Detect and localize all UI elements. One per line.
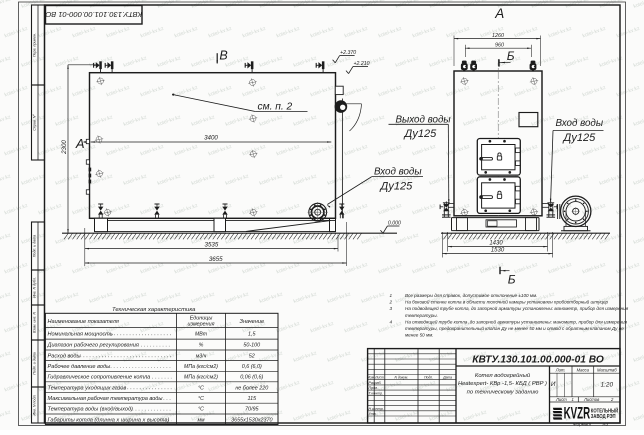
svg-text:В: В <box>219 48 227 62</box>
svg-text:Гидравлическое сопротивление к: Гидравлическое сопротивление котла <box>48 375 151 381</box>
svg-text:Перв. примен.: Перв. примен. <box>32 33 36 57</box>
svg-text:Подп. и дата: Подп. и дата <box>32 235 36 258</box>
svg-text:3655: 3655 <box>209 256 223 263</box>
svg-text:см. п. 2: см. п. 2 <box>258 101 293 112</box>
svg-text:Утв.: Утв. <box>369 412 377 416</box>
svg-text:Масса: Масса <box>577 367 590 372</box>
svg-text:А3: А3 <box>602 422 609 427</box>
svg-text:1530: 1530 <box>491 247 505 253</box>
svg-text:Инв. N дубл.: Инв. N дубл. <box>32 277 36 298</box>
svg-text:Масштаб: Масштаб <box>597 367 617 372</box>
svg-text:115: 115 <box>248 396 258 402</box>
svg-text:температуры.: температуры. <box>405 313 438 318</box>
svg-text:Рабочее давление воды: Рабочее давление воды <box>48 364 111 370</box>
svg-text:960: 960 <box>495 43 504 49</box>
svg-text:Б: Б <box>507 49 515 63</box>
svg-text:KVZR: KVZR <box>564 404 591 422</box>
svg-text:КВТУ.130.101.00.000-01 ВО: КВТУ.130.101.00.000-01 ВО <box>472 354 604 365</box>
svg-text:4: 4 <box>389 319 392 324</box>
svg-text:2300: 2300 <box>61 140 68 155</box>
svg-text:+2.210: +2.210 <box>354 61 370 67</box>
svg-text:КВТУ.130.101.00.000-01 ВО: КВТУ.130.101.00.000-01 ВО <box>45 10 142 19</box>
svg-text:Расход воды: Расход воды <box>48 353 81 359</box>
svg-text:по техническому заданию: по техническому заданию <box>467 389 539 395</box>
svg-text:Лист: Лист <box>555 397 567 402</box>
svg-text:2: 2 <box>388 300 392 305</box>
svg-text:Справ. N°: Справ. N° <box>32 114 36 131</box>
svg-text:ЗАВОД РЭП: ЗАВОД РЭП <box>591 413 616 420</box>
svg-text:Габариты котла (длинна х ширин: Габариты котла (длинна х ширина х высота… <box>48 417 170 423</box>
svg-text:Т.контр.: Т.контр. <box>369 391 384 395</box>
svg-text:1,5: 1,5 <box>248 331 256 337</box>
svg-text:3400: 3400 <box>204 135 218 142</box>
svg-text:Температура уходящих газов: Температура уходящих газов <box>48 385 127 391</box>
svg-text:70/95: 70/95 <box>245 407 259 413</box>
svg-text:Подп. и дата: Подп. и дата <box>32 352 36 375</box>
svg-text:А: А <box>494 6 504 21</box>
svg-text:Ду125: Ду125 <box>379 180 414 192</box>
svg-text:3535: 3535 <box>205 241 219 248</box>
svg-text:И: И <box>551 381 556 388</box>
svg-text:температуры, предохранительный: температуры, предохранительный клапан Ду… <box>405 325 624 331</box>
svg-text:Листов: Листов <box>583 397 600 402</box>
svg-text:Диапазон рабочего регулировани: Диапазон рабочего регулирования <box>47 343 139 349</box>
svg-text:На отводящей трубе котла ,до з: На отводящей трубе котла ,до запорной ар… <box>405 318 627 324</box>
svg-text:1:20: 1:20 <box>601 382 614 389</box>
svg-text:52: 52 <box>249 353 255 359</box>
svg-text:+2.370: +2.370 <box>340 50 356 56</box>
svg-text:На подводящей трубе котла, д: На подводящей трубе котла, до запорной а… <box>405 305 629 311</box>
svg-text:Ду125: Ду125 <box>562 132 597 144</box>
svg-text:мм: мм <box>197 417 205 423</box>
svg-text:0,06 (0,6): 0,06 (0,6) <box>240 375 263 381</box>
svg-text:Изм: Изм <box>368 376 375 380</box>
svg-text:На боковой стенке котла в обла: На боковой стенке котла в области топочн… <box>405 299 609 305</box>
svg-text:1: 1 <box>389 293 392 298</box>
svg-text:0,6 (6,0): 0,6 (6,0) <box>242 364 262 370</box>
svg-text:Лист: Лист <box>374 376 384 380</box>
svg-text:не более 220: не более 220 <box>235 385 268 391</box>
svg-text:50-100: 50-100 <box>243 343 260 349</box>
svg-text:1: 1 <box>572 397 574 402</box>
svg-text:Выход воды: Выход воды <box>396 114 452 125</box>
svg-text:Б: Б <box>508 273 516 287</box>
svg-text:°С: °С <box>198 385 204 391</box>
svg-text:Вход воды: Вход воды <box>556 118 604 129</box>
svg-text:МПа (кгс/см2): МПа (кгс/см2) <box>184 375 218 381</box>
svg-text:МВт: МВт <box>195 331 208 337</box>
svg-text:м3/ч: м3/ч <box>196 353 207 359</box>
svg-text:Лит.: Лит. <box>555 367 566 372</box>
svg-text:Наименование показателя: Наименование показателя <box>48 319 119 325</box>
svg-text:0.000: 0.000 <box>388 220 401 226</box>
svg-text:%: % <box>199 343 204 349</box>
svg-text:Формат: Формат <box>573 422 591 427</box>
svg-text:Все размеры для справок, допус: Все размеры для справок, допустимое откл… <box>405 293 537 298</box>
svg-text:Котел водогрейный: Котел водогрейный <box>475 372 531 379</box>
svg-text:Подп.: Подп. <box>424 376 433 380</box>
svg-text:Разраб.: Разраб. <box>369 381 382 385</box>
svg-text:°С: °С <box>198 396 204 402</box>
svg-text:Температура воды (вход/выход): Температура воды (вход/выход) <box>48 407 134 413</box>
svg-text:1430: 1430 <box>489 240 503 246</box>
svg-text:Максимальная рабочая температу: Максимальная рабочая температура воды <box>48 396 163 402</box>
svg-text:°С: °С <box>198 407 204 413</box>
svg-text:1260: 1260 <box>492 33 504 39</box>
svg-text:Номинальная мощность: Номинальная мощность <box>48 331 113 337</box>
svg-text:3655х1530х2370: 3655х1530х2370 <box>231 417 272 423</box>
svg-text:3: 3 <box>389 306 392 311</box>
svg-text:менее 50 мм.: менее 50 мм. <box>405 333 434 338</box>
svg-text:Взам. инв. N: Взам. инв. N <box>32 312 36 333</box>
svg-text:А: А <box>75 136 85 151</box>
svg-text:Н.контр.: Н.контр. <box>369 407 384 411</box>
svg-text:Значение: Значение <box>240 319 265 325</box>
svg-text:МПа (кгс/см2): МПа (кгс/см2) <box>184 364 218 370</box>
svg-text:Ду125: Ду125 <box>403 128 438 140</box>
svg-text:N докум.: N докум. <box>395 376 409 380</box>
svg-text:Вход воды: Вход воды <box>374 166 422 177</box>
svg-text:Инв. N подл.: Инв. N подл. <box>32 394 36 415</box>
svg-text:Дата: Дата <box>442 376 452 380</box>
svg-text:Пров.: Пров. <box>369 386 378 390</box>
svg-text:Heatexpert- КВр -1,5- КБД ( РВ: Heatexpert- КВр -1,5- КБД ( РВР ) <box>458 381 547 387</box>
svg-text:Техническая характеристика: Техническая характеристика <box>112 307 196 313</box>
svg-text:измерения: измерения <box>188 322 215 328</box>
